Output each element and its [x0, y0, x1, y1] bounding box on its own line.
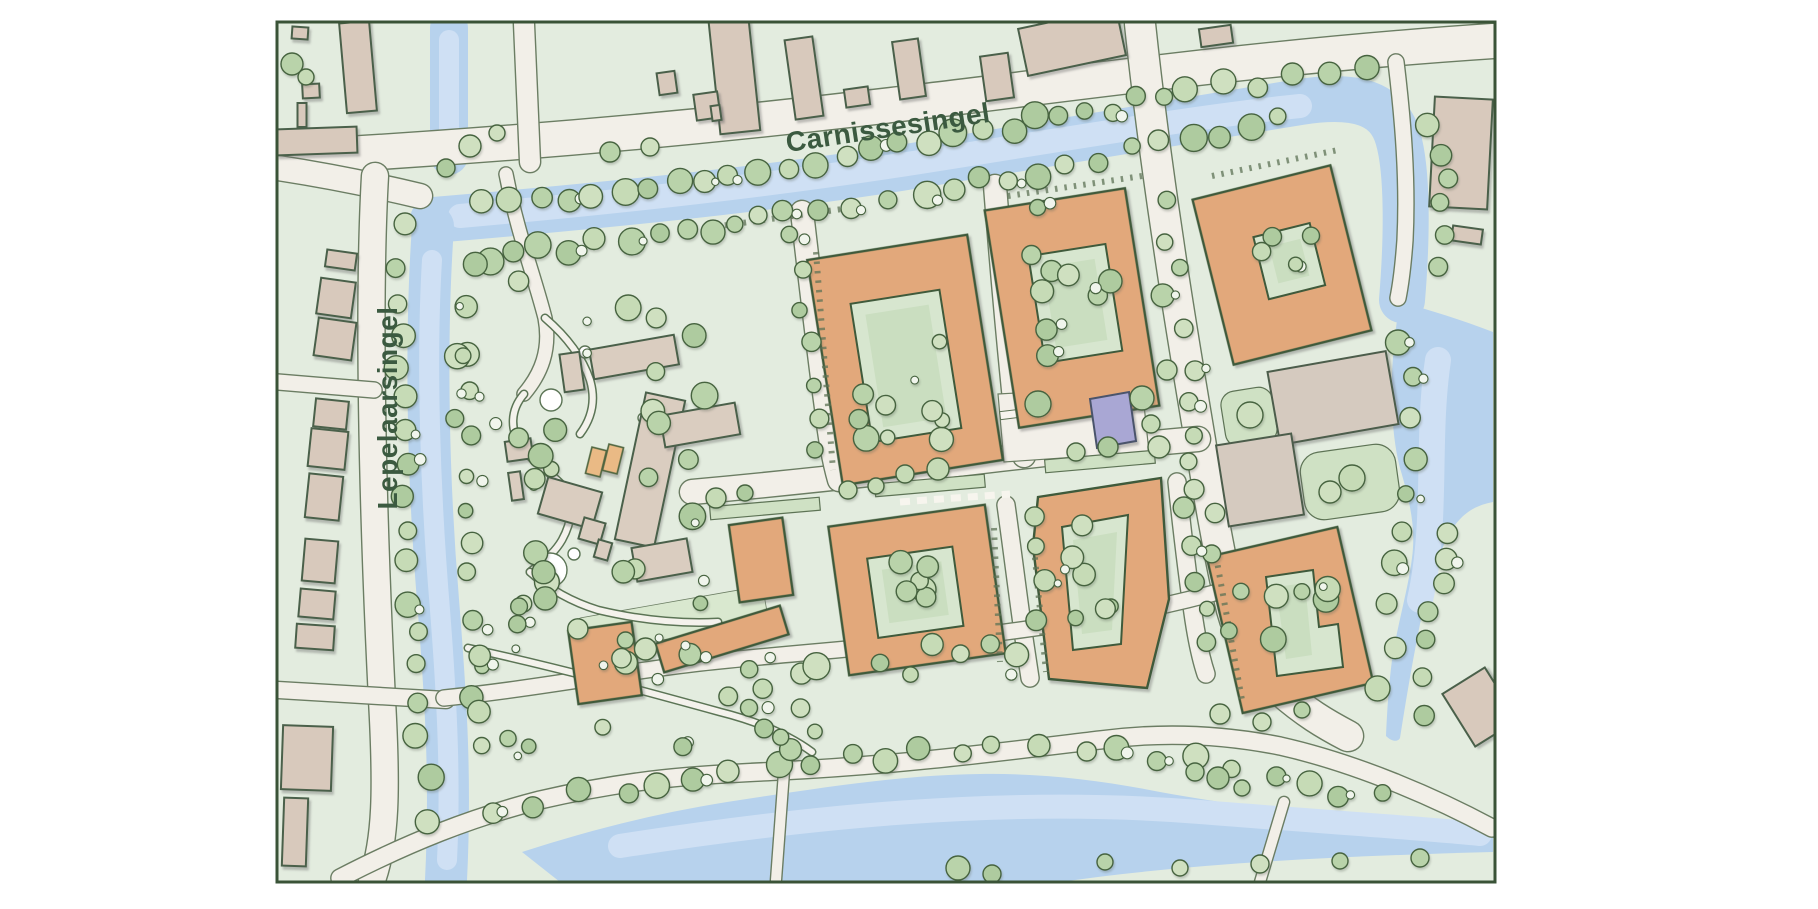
tree [1431, 194, 1449, 212]
tree [644, 773, 669, 798]
tree [693, 596, 707, 610]
existing-building [1199, 25, 1233, 47]
campus-annex [508, 471, 524, 500]
tree [944, 179, 965, 200]
tree [1411, 849, 1429, 867]
tree [896, 581, 917, 602]
tree [1098, 437, 1118, 457]
tree [803, 653, 830, 680]
tree [399, 522, 417, 540]
tree [1251, 855, 1269, 873]
tree [408, 693, 428, 713]
tree [1264, 584, 1288, 608]
tree [968, 167, 989, 188]
existing-building [282, 798, 308, 867]
shrub [1452, 557, 1463, 568]
campus-annex [559, 352, 584, 392]
tree [745, 159, 771, 185]
tree [807, 378, 821, 392]
tree [1221, 623, 1237, 639]
building-bar-3 [729, 518, 793, 603]
tree [1184, 479, 1204, 499]
tree [469, 645, 490, 666]
tree [1026, 164, 1051, 189]
tree [903, 667, 918, 682]
existing-rowhouse [298, 589, 335, 620]
tree [981, 635, 999, 653]
tree [1200, 601, 1215, 616]
tree [470, 190, 493, 213]
tree [394, 213, 416, 235]
road-north-stub [524, 24, 530, 162]
shrub [1056, 319, 1067, 330]
existing-building [298, 103, 307, 127]
tree [1034, 570, 1055, 591]
existing-building [980, 53, 1014, 101]
tree [873, 749, 897, 773]
tree [1175, 319, 1193, 337]
tree [999, 172, 1017, 190]
tree [458, 504, 472, 518]
housing-block-a [807, 235, 1003, 486]
tree [907, 737, 930, 760]
tree [801, 756, 819, 774]
shrub [1090, 283, 1101, 294]
tree [1126, 87, 1145, 106]
tree [1180, 124, 1207, 151]
existing-building [980, 53, 1014, 101]
road-side-west-1 [278, 382, 374, 390]
tree [1289, 257, 1303, 271]
existing-building [302, 84, 320, 99]
existing-rowhouse [308, 428, 349, 470]
shrub [514, 752, 522, 760]
tree [646, 308, 666, 328]
tree [595, 719, 611, 735]
shrub [1202, 364, 1210, 372]
existing-building [281, 725, 333, 791]
existing-building [298, 103, 307, 127]
tree [839, 481, 857, 499]
existing-rowhouse [295, 624, 335, 651]
tree [879, 191, 897, 209]
existing-rowhouse [305, 473, 343, 520]
tree [807, 442, 823, 458]
lake-highlight [1420, 360, 1438, 600]
tree [386, 259, 405, 278]
tree [679, 450, 699, 470]
existing-building-grey [1216, 434, 1304, 527]
tree [741, 661, 758, 678]
tree [583, 228, 605, 250]
tree [1151, 284, 1174, 307]
shrub [733, 175, 742, 184]
tree [1026, 610, 1047, 631]
tree [1099, 270, 1122, 293]
existing-building [292, 26, 309, 39]
tree [749, 206, 767, 224]
existing-building [277, 127, 358, 156]
shrub [792, 209, 802, 219]
tree [638, 179, 658, 199]
tree [755, 719, 774, 738]
campus-annex [559, 352, 584, 392]
tree [921, 634, 943, 656]
tree [579, 185, 603, 209]
tree [509, 616, 526, 633]
tree [1025, 507, 1044, 526]
tree [896, 465, 914, 483]
shrub [414, 454, 426, 466]
tree [922, 401, 943, 422]
tree [522, 797, 543, 818]
tree [1158, 191, 1175, 208]
shrub [576, 245, 587, 256]
tree [1234, 780, 1250, 796]
tree [1315, 577, 1340, 602]
tree [1031, 280, 1054, 303]
tree [532, 561, 555, 584]
shrub [583, 349, 592, 358]
tree [639, 468, 657, 486]
tree [1376, 593, 1397, 614]
tree [1439, 169, 1458, 188]
shrub [1419, 374, 1428, 383]
tree [916, 587, 936, 607]
tree [600, 142, 620, 162]
road-lepelaarsingel [371, 176, 384, 880]
shrub [1006, 669, 1017, 680]
tree [1172, 860, 1188, 876]
tree [410, 623, 428, 641]
tree [407, 655, 425, 673]
tree [1172, 77, 1197, 102]
site-plan-map: Carnissesingel Lepelaarsingel [0, 0, 1818, 909]
tree [781, 226, 797, 242]
shrub [497, 806, 508, 817]
tree [772, 200, 792, 220]
tree [1328, 786, 1349, 807]
existing-building [282, 798, 308, 867]
shrub [1121, 747, 1133, 759]
tree [1028, 538, 1045, 555]
tree [459, 135, 481, 157]
tree [566, 777, 590, 801]
tree [1148, 130, 1168, 150]
tree [617, 632, 633, 648]
tree [1172, 259, 1188, 275]
tree [674, 738, 692, 756]
shrub [512, 645, 520, 653]
tree [1097, 854, 1113, 870]
tree [1237, 402, 1263, 428]
tree [682, 324, 706, 348]
tree [808, 724, 823, 739]
tree [500, 730, 516, 746]
tree [651, 224, 669, 242]
tree [647, 411, 670, 434]
tree [1417, 630, 1435, 648]
tree [678, 220, 698, 240]
tree [468, 700, 491, 723]
existing-rowhouse [314, 318, 357, 361]
tree [1049, 106, 1068, 125]
tree [1025, 391, 1051, 417]
tree [1148, 436, 1170, 458]
tree [1339, 465, 1365, 491]
tree [1186, 763, 1204, 781]
tree [1400, 408, 1420, 428]
tree [1398, 486, 1414, 502]
existing-building [339, 21, 377, 113]
tree [462, 426, 481, 445]
tree [1303, 227, 1320, 244]
tree [876, 395, 896, 415]
shrub [799, 234, 810, 245]
shrub [701, 774, 713, 786]
shrub [411, 430, 420, 439]
tree [1414, 706, 1434, 726]
existing-building [281, 725, 333, 791]
tree [496, 187, 521, 212]
shrub [583, 317, 591, 325]
existing-rowhouse [308, 428, 349, 470]
existing-building [711, 105, 722, 121]
tree [668, 168, 693, 193]
existing-building [844, 86, 870, 107]
shrub [1165, 757, 1174, 766]
tree [1413, 668, 1431, 686]
shrub [691, 519, 699, 527]
shrub [681, 641, 690, 650]
existing-building [1199, 25, 1233, 47]
tree [1263, 228, 1281, 246]
tree [808, 200, 828, 220]
existing-building [1451, 225, 1483, 244]
garden-pond [540, 389, 562, 411]
existing-rowhouse [325, 249, 357, 270]
tree [1297, 771, 1322, 796]
tree [509, 428, 529, 448]
tree [1180, 453, 1197, 470]
shrub [652, 673, 664, 685]
tree [1434, 573, 1455, 594]
tree [415, 810, 439, 834]
tree [1148, 752, 1167, 771]
tree [461, 532, 482, 553]
tree [691, 382, 718, 409]
tree [1067, 443, 1085, 461]
tree [773, 729, 789, 745]
tree [1022, 102, 1049, 129]
tree [1436, 226, 1454, 244]
tree [803, 153, 828, 178]
tree [418, 764, 444, 790]
tree [647, 363, 665, 381]
tree [1022, 246, 1041, 265]
tree [1005, 643, 1029, 667]
tree [503, 241, 524, 262]
shrub [1044, 197, 1056, 209]
tree [983, 865, 1001, 883]
shrub [490, 418, 502, 430]
tree [1055, 155, 1074, 174]
shrub [700, 652, 711, 663]
tree [741, 699, 758, 716]
existing-building [711, 105, 722, 121]
tree [1197, 633, 1215, 651]
shrub [525, 617, 535, 627]
shrub [1417, 495, 1425, 503]
tree [615, 295, 641, 321]
tree [1261, 626, 1287, 652]
shrub [1195, 400, 1207, 412]
tree [1332, 853, 1348, 869]
shrub [477, 475, 488, 486]
tree [446, 410, 464, 428]
tree [1294, 584, 1310, 600]
tree [1124, 138, 1140, 154]
tree [706, 488, 726, 508]
tree [619, 784, 638, 803]
tree [528, 444, 553, 469]
shrub [762, 702, 774, 714]
tree [511, 598, 528, 615]
tree [1157, 360, 1177, 380]
shrub [1054, 580, 1061, 587]
tree [1374, 785, 1390, 801]
tree [849, 410, 868, 429]
shrub [1197, 546, 1207, 556]
shrub [482, 624, 493, 635]
tree [844, 745, 863, 764]
tree [868, 478, 884, 494]
existing-rowhouse [314, 318, 357, 361]
tree [1429, 257, 1448, 276]
tree [1205, 503, 1224, 522]
tree [737, 485, 753, 501]
tree [455, 348, 471, 364]
tree [1392, 522, 1411, 541]
tree [612, 649, 631, 668]
shrub [599, 661, 608, 670]
tree [1253, 713, 1271, 731]
shrub [1397, 563, 1409, 575]
tree [534, 587, 557, 610]
tree [1157, 234, 1173, 250]
tree [1209, 126, 1231, 148]
tree [1281, 63, 1303, 85]
shrub [932, 195, 942, 205]
tree [810, 409, 829, 428]
tree [871, 654, 888, 671]
tree [1233, 583, 1249, 599]
tree [929, 427, 953, 451]
tree [917, 556, 938, 577]
existing-rowhouse [325, 249, 357, 270]
tree [298, 69, 314, 85]
tree [612, 179, 639, 206]
existing-rowhouse [316, 278, 356, 319]
shrub [415, 605, 424, 614]
shrub [1405, 338, 1415, 348]
tree [489, 125, 505, 141]
tree [635, 638, 657, 660]
tree [1130, 386, 1154, 410]
existing-rowhouse [316, 278, 356, 319]
tree [463, 252, 487, 276]
shrub [765, 652, 775, 662]
tree [889, 551, 912, 574]
tree [1211, 69, 1236, 94]
shrub [1346, 791, 1354, 799]
existing-building [657, 71, 678, 95]
tree [1355, 56, 1379, 80]
site-plan-canvas: Carnissesingel Lepelaarsingel [0, 0, 1818, 909]
tree [525, 232, 551, 258]
tree [795, 261, 812, 278]
tree [1186, 427, 1203, 444]
tree [1142, 415, 1160, 433]
tree [719, 687, 738, 706]
tree [1404, 448, 1427, 471]
tree [463, 611, 483, 631]
tree [927, 458, 949, 480]
tree [395, 549, 418, 572]
tree [641, 138, 659, 156]
shrub [856, 206, 865, 215]
existing-building [277, 127, 358, 156]
tree [522, 739, 536, 753]
tree [1294, 702, 1310, 718]
tree [779, 160, 798, 179]
campus-annex [508, 471, 524, 500]
tree [727, 216, 743, 232]
tree [1173, 497, 1194, 518]
shrub [1054, 347, 1064, 357]
tree [1058, 264, 1080, 286]
existing-building [1451, 225, 1483, 244]
tree [458, 563, 475, 580]
tree [880, 430, 894, 444]
existing-rowhouse [302, 539, 339, 584]
tree [1028, 735, 1050, 757]
shrub [1116, 111, 1127, 122]
garden-pond-small [568, 548, 580, 560]
building-bar-3 [729, 518, 793, 603]
tree [1437, 523, 1457, 543]
shrub [655, 634, 663, 642]
shrub [456, 303, 463, 310]
tree [952, 645, 969, 662]
tree [612, 561, 634, 583]
tree [568, 619, 588, 639]
tree [1076, 103, 1092, 119]
existing-building [657, 71, 678, 95]
tree [1185, 573, 1204, 592]
tree [753, 679, 772, 698]
tree [1207, 767, 1229, 789]
shrub [699, 575, 710, 586]
tree [982, 736, 999, 753]
tree [403, 724, 428, 749]
tree [932, 335, 946, 349]
existing-rowhouse [313, 398, 349, 429]
tree [701, 220, 725, 244]
shrub [911, 376, 919, 384]
tree [437, 159, 455, 177]
existing-rowhouse [313, 398, 349, 429]
